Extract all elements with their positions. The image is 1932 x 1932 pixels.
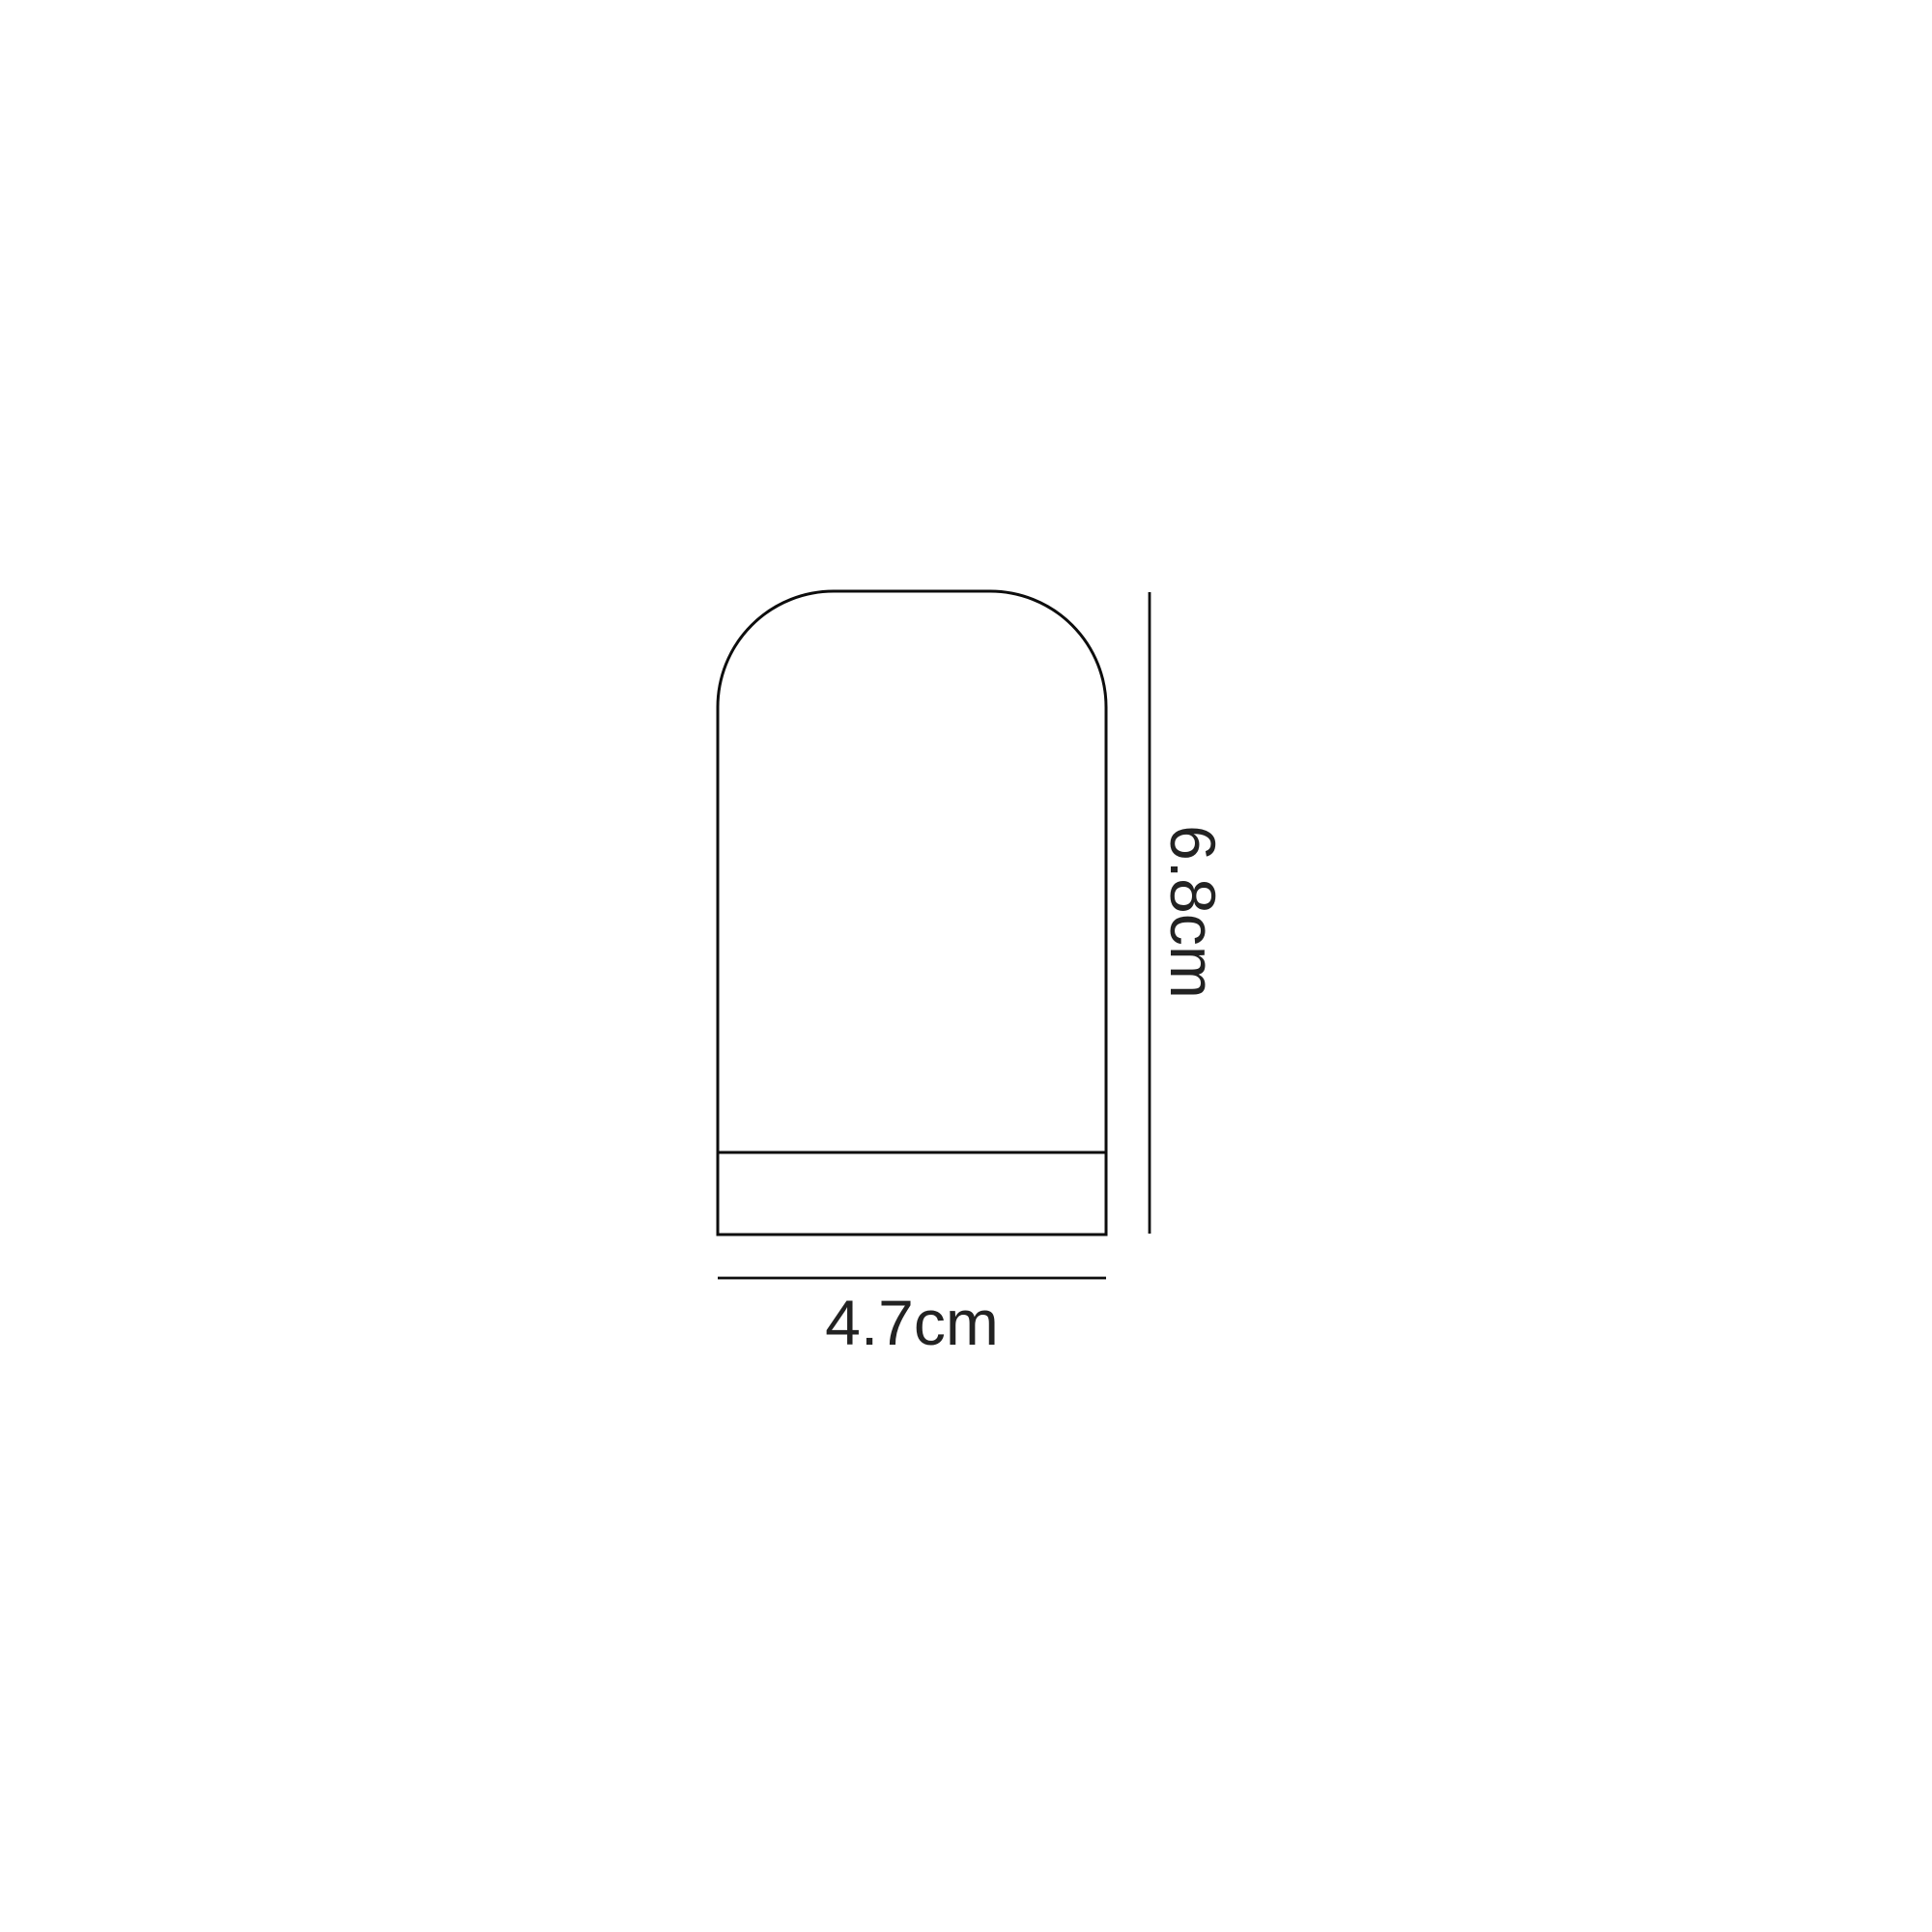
svg-text:4.7cm: 4.7cm (825, 1287, 999, 1358)
svg-text:6.8cm: 6.8cm (1157, 825, 1229, 999)
